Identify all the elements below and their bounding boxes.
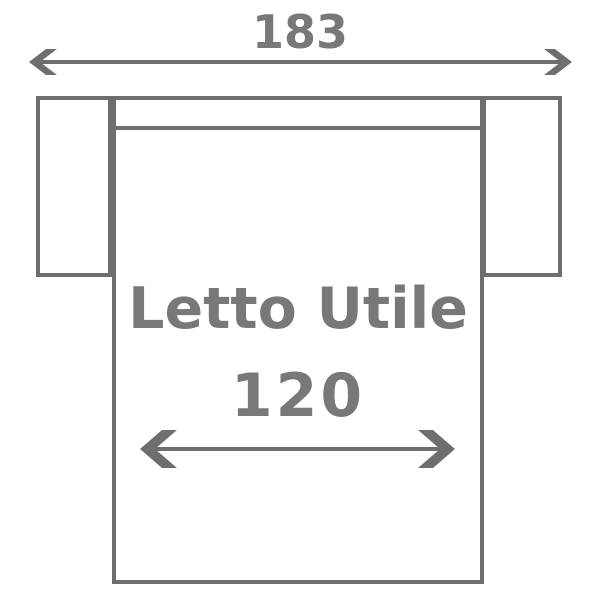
bed-width-value: 120 bbox=[114, 366, 482, 426]
right-armrest bbox=[484, 98, 560, 275]
total-width-value: 183 bbox=[0, 9, 600, 55]
sofa-bed-dimension-diagram: 183 Letto Utile 120 bbox=[0, 0, 600, 600]
bed-usable-label: Letto Utile bbox=[114, 281, 482, 338]
left-armrest bbox=[38, 98, 110, 275]
